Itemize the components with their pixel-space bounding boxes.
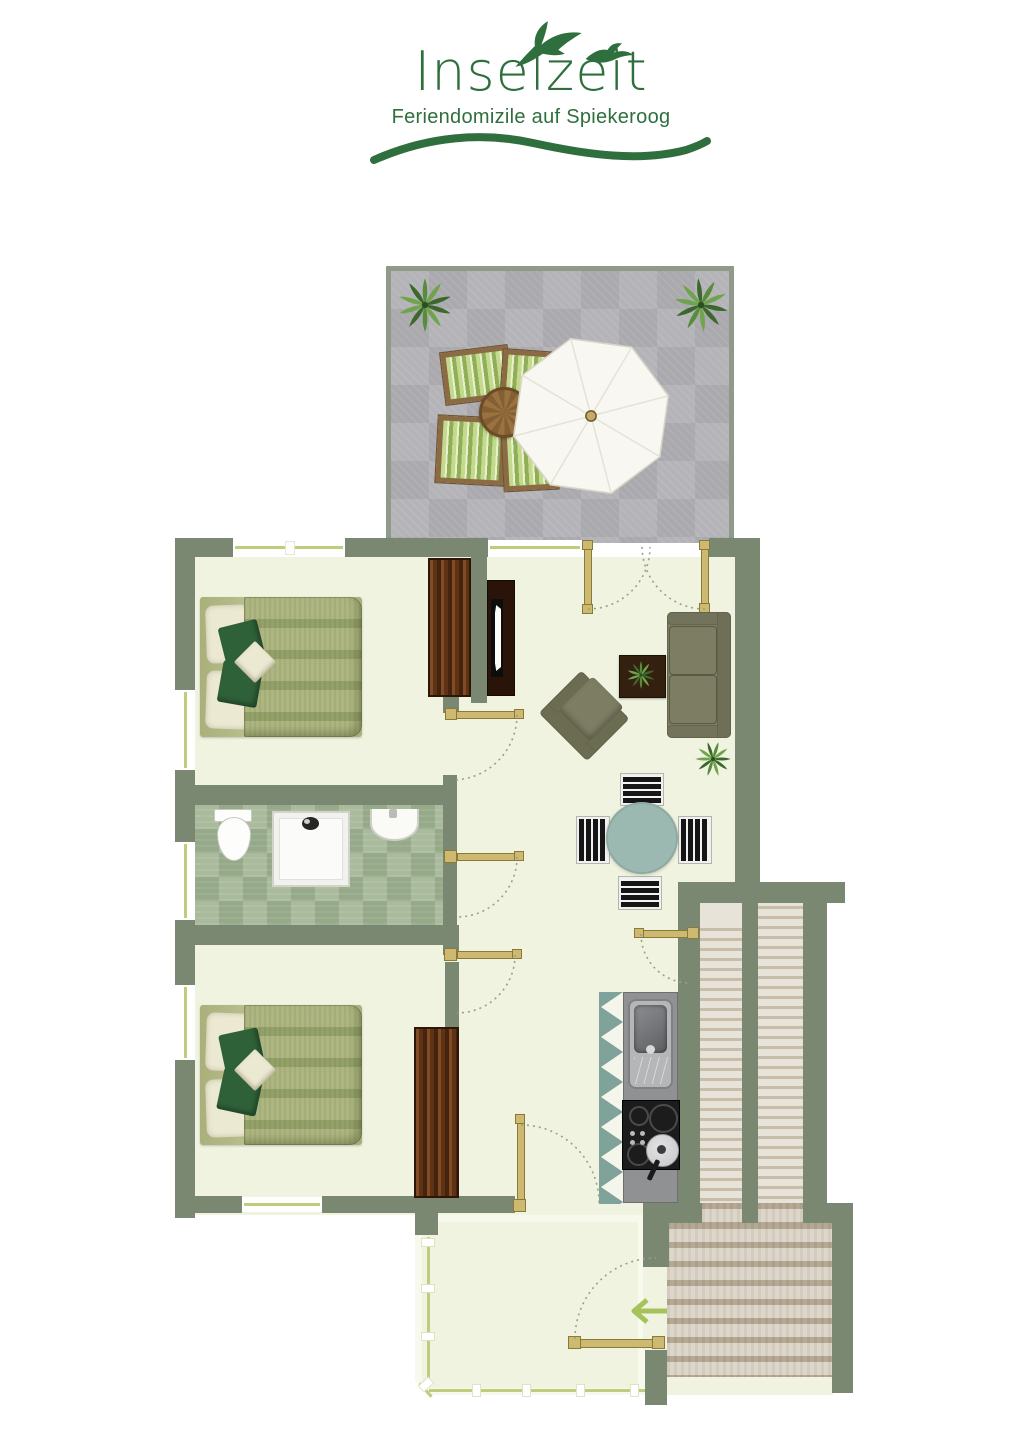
- door-post: [514, 709, 524, 719]
- plant-icon: [626, 660, 656, 690]
- door-post: [582, 604, 593, 614]
- wave-icon: [368, 128, 713, 170]
- knob: [640, 1140, 645, 1145]
- wall-segment: [803, 1203, 853, 1223]
- sink-faucet: [646, 1045, 655, 1054]
- stair-flight-left: [700, 903, 742, 1223]
- wall-segment: [667, 1203, 702, 1223]
- sunroom-floor: [415, 1215, 645, 1395]
- window-tick: [421, 1238, 435, 1247]
- sofa-cushion: [669, 675, 717, 724]
- drainboard: [634, 1057, 668, 1084]
- window-tick: [522, 1384, 531, 1397]
- wall-segment: [345, 538, 488, 557]
- stair-steps-wide: [667, 1223, 832, 1377]
- sunroom-window-line: [429, 1389, 645, 1392]
- dining-table: [606, 802, 678, 874]
- wall-segment: [322, 1196, 515, 1213]
- burner: [649, 1104, 678, 1133]
- logo-title: Inselzeit: [44, 44, 1018, 101]
- door-post: [514, 851, 524, 861]
- kitchen-sink: [628, 999, 673, 1089]
- wall-segment: [175, 770, 195, 842]
- logo-subtitle: Feriendomizile auf Spiekeroog: [44, 106, 1018, 129]
- knob: [630, 1140, 635, 1145]
- window-tick: [421, 1284, 435, 1293]
- window: [242, 1197, 322, 1212]
- door-post: [699, 540, 710, 550]
- door-post: [444, 850, 457, 863]
- window-tick: [421, 1332, 435, 1341]
- wall-segment: [643, 1203, 669, 1267]
- entry-arrow-icon: [623, 1295, 671, 1327]
- double-bed: [200, 1005, 362, 1145]
- window-tick: [630, 1384, 639, 1397]
- shower-drain: [302, 817, 319, 830]
- wardrobe: [414, 1027, 459, 1198]
- window-tick: [472, 1384, 481, 1397]
- door-post: [634, 928, 644, 938]
- tv-sideboard: [487, 580, 515, 696]
- wardrobe: [428, 558, 471, 697]
- dining-chair: [621, 774, 663, 805]
- sunroom-window-line: [427, 1237, 430, 1385]
- floorplan-page: Inselzeit Feriendomizile auf Spiekeroog: [0, 0, 1018, 1440]
- window-tick: [285, 541, 295, 555]
- sofa-arm: [667, 725, 723, 738]
- door-bedroom2: [457, 951, 515, 959]
- door-entry: [575, 1339, 655, 1348]
- dining-chair: [679, 817, 711, 863]
- double-bed: [200, 597, 362, 737]
- door-post: [444, 948, 457, 961]
- stair-center-wall: [742, 903, 758, 1223]
- stair-flight-right: [758, 903, 803, 1223]
- dining-chair: [619, 877, 661, 909]
- window-tick: [576, 1384, 585, 1397]
- sofa-cushion: [669, 626, 717, 675]
- door-post: [515, 1114, 525, 1124]
- kitchen-tile-strip: [599, 992, 623, 1204]
- wall-segment: [175, 925, 457, 945]
- window: [488, 540, 582, 555]
- window: [177, 690, 193, 770]
- plant-icon: [396, 276, 454, 334]
- parasol-icon: [496, 321, 686, 511]
- french-door-leaf: [584, 543, 592, 609]
- wall-segment: [832, 1223, 853, 1393]
- wall-segment: [735, 538, 760, 903]
- knob: [640, 1131, 645, 1136]
- door-bathroom: [457, 853, 517, 861]
- french-door-leaf: [701, 543, 709, 609]
- basin-faucet: [389, 809, 397, 818]
- pan-center: [657, 1145, 666, 1154]
- door-post: [582, 540, 593, 550]
- wall-segment: [175, 538, 195, 690]
- wall-segment: [803, 903, 827, 1203]
- stair-landing-floor: [667, 1377, 833, 1395]
- sofa: [667, 612, 731, 738]
- burner: [629, 1106, 649, 1126]
- sofa-back: [717, 612, 731, 738]
- door-post: [652, 1336, 665, 1349]
- door-post: [513, 1199, 526, 1212]
- door-stairhall: [639, 930, 689, 938]
- window: [177, 842, 193, 920]
- window: [177, 985, 193, 1060]
- knob: [630, 1131, 635, 1136]
- wall-pillar: [415, 1213, 438, 1235]
- door-bedroom1: [452, 711, 517, 719]
- stair-steps: [700, 928, 742, 1223]
- door-sunroom: [517, 1121, 525, 1201]
- sofa-arm: [667, 612, 723, 625]
- wall-segment: [471, 538, 487, 703]
- dining-chair: [577, 817, 609, 863]
- wall-segment: [175, 1060, 195, 1218]
- door-post: [512, 949, 522, 959]
- wall-segment: [678, 903, 700, 1223]
- door-post: [445, 708, 457, 720]
- tv-screen: [495, 605, 501, 671]
- wall-segment: [175, 785, 447, 805]
- stair-steps: [758, 906, 803, 1223]
- wall-segment: [175, 1196, 242, 1213]
- door-post: [687, 927, 699, 939]
- wall-segment: [678, 882, 845, 903]
- cooktop: [622, 1100, 680, 1170]
- wall-segment: [645, 1350, 667, 1405]
- door-post: [568, 1336, 581, 1349]
